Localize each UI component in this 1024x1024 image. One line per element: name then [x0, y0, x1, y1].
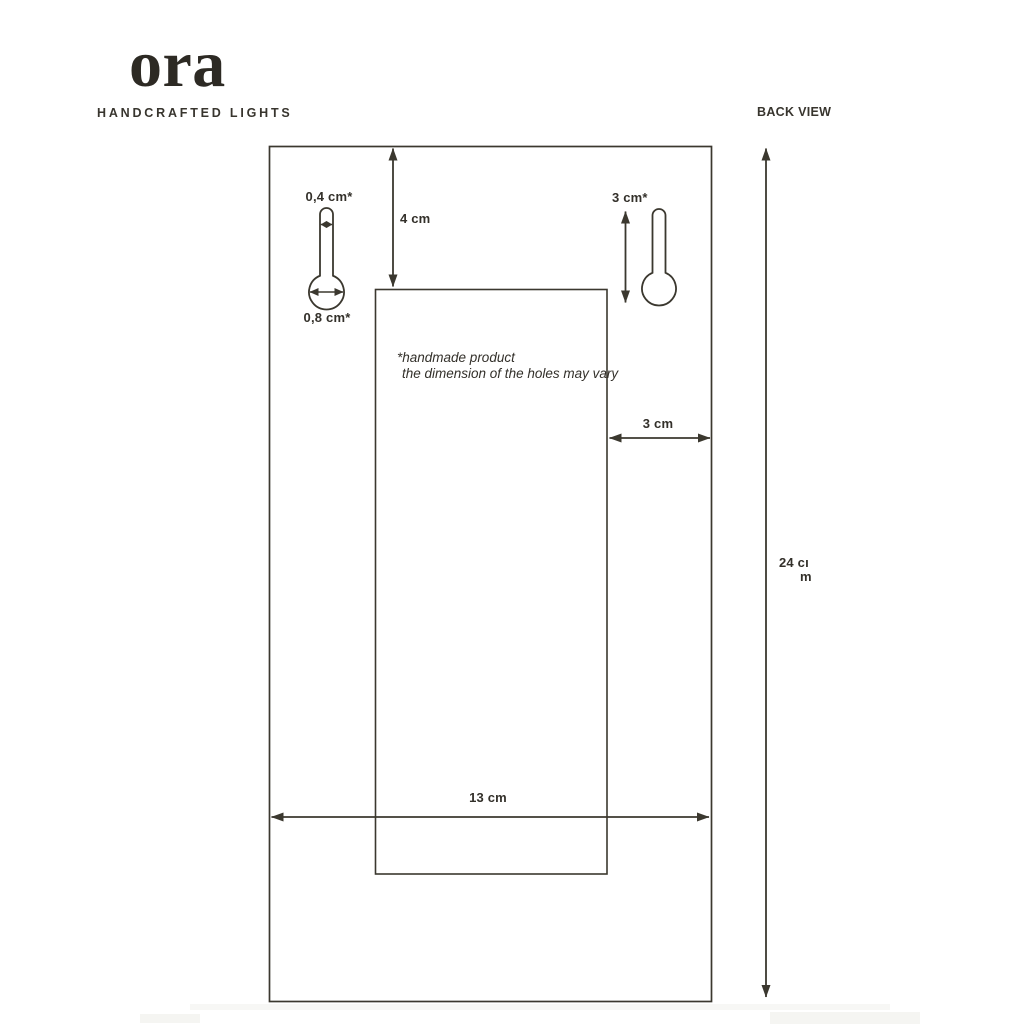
keyhole-left-icon	[309, 208, 344, 309]
spec-sheet-page: ora HANDCRAFTED LIGHTS BACK VIEW	[0, 0, 1024, 1024]
artifact-band	[190, 1004, 890, 1010]
panel-height-line1: 24 cı	[779, 555, 809, 570]
dim-label-panel-width: 13 cm	[469, 790, 507, 805]
keyhole-right-icon	[642, 209, 676, 306]
dim-label-slot-width: 0,4 cm*	[306, 189, 353, 204]
dim-label-keyhole-height: 3 cm*	[612, 190, 648, 205]
technical-drawing	[0, 0, 1024, 1024]
artifact-patch-right	[770, 1012, 920, 1024]
note-line1: *handmade product	[397, 350, 515, 365]
dim-label-top-offset: 4 cm	[400, 211, 430, 226]
dim-label-hole-width: 0,8 cm*	[304, 310, 351, 325]
panel-height-line2: m	[779, 569, 812, 584]
note-line2: the dimension of the holes may vary	[397, 366, 618, 381]
dim-label-panel-height: 24 cı m	[779, 556, 812, 584]
handmade-note: *handmade product the dimension of the h…	[397, 350, 618, 381]
artifact-patch-left	[140, 1014, 200, 1023]
dim-label-side-offset: 3 cm	[643, 416, 673, 431]
